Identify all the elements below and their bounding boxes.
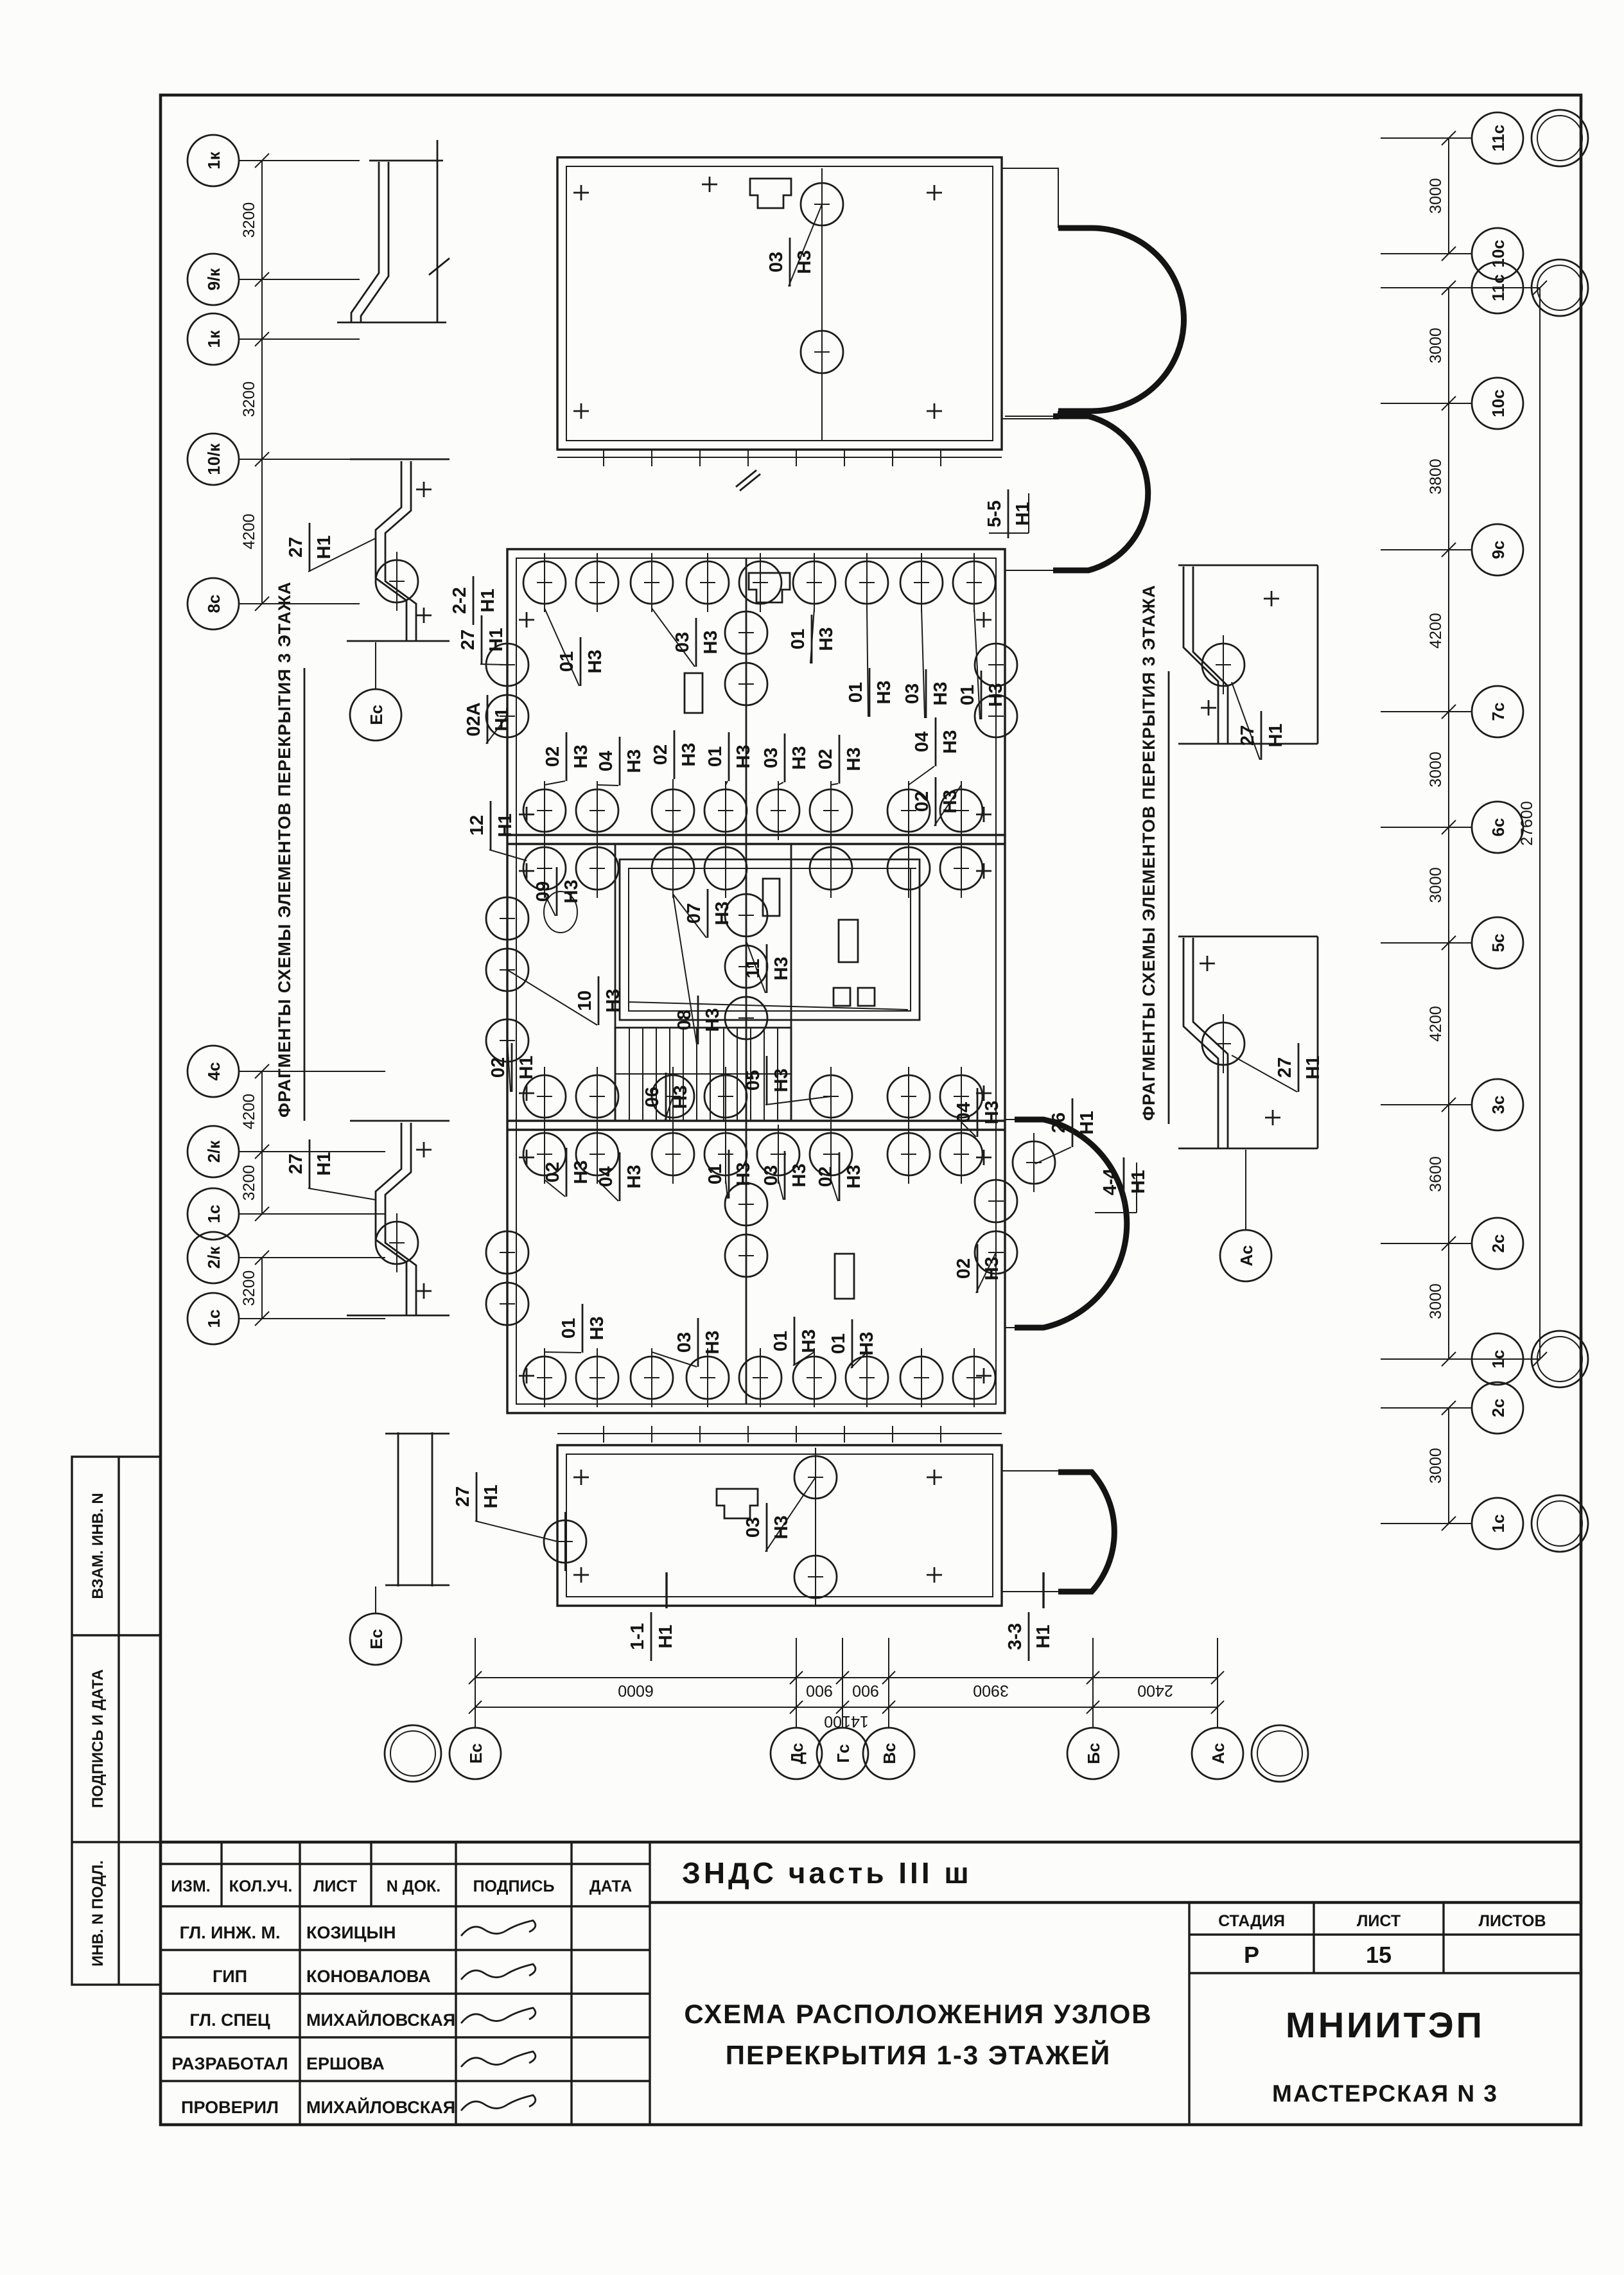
node-circle: [887, 1067, 930, 1126]
col-header-podpis: ПОДПИСЬ: [473, 1877, 555, 1895]
node-circle: [725, 603, 767, 662]
drawing-text: 02: [650, 744, 671, 765]
node-callout: 04Н3: [596, 1152, 645, 1201]
drawing-text: 3200: [240, 382, 258, 417]
node-circle: [523, 553, 566, 612]
axis-marker: 6с: [1472, 802, 1523, 853]
sheet-number: 15: [1366, 1942, 1392, 1968]
drawing-text: Н3: [571, 744, 591, 768]
axis-marker: Ес: [350, 1586, 401, 1665]
col-header-koluch: КОЛ.УЧ.: [229, 1877, 293, 1895]
drawing-text: Ес: [466, 1743, 485, 1764]
node-circle: [846, 553, 888, 612]
side-stamp-label: ВЗАМ. ИНВ. N: [89, 1493, 107, 1599]
drawing-text: 27: [286, 537, 306, 558]
drawing-text: Н3: [940, 730, 961, 753]
drawing-text: Н1: [1266, 723, 1286, 747]
drawing-text: 3000: [1427, 751, 1445, 787]
node-circle: [576, 553, 618, 612]
drawing-text: 7с: [1489, 703, 1508, 721]
drawing-text: Н3: [712, 901, 733, 925]
drawing-text: Н3: [771, 1515, 792, 1539]
vent-block: [750, 179, 791, 208]
node-callout: 01Н3: [545, 1304, 607, 1353]
node-callout: 01Н3: [957, 608, 1006, 719]
bay-window: [1015, 1120, 1127, 1328]
drawing-text: 01: [828, 1333, 849, 1354]
drawing-text: 6000: [618, 1682, 654, 1700]
drawing-text: 03: [761, 1165, 781, 1186]
fragment-note-left: ФРАГМЕНТЫ СХЕМЫ ЭЛЕМЕНТОВ ПЕРЕКРЫТИЯ 3 Э…: [275, 581, 294, 1118]
drawing-text: 01: [705, 1164, 726, 1184]
drawing-text: 3200: [240, 1270, 258, 1306]
bay-window: [1058, 228, 1184, 411]
wall-fragment: [1178, 565, 1318, 1148]
node-callout: 01Н3: [771, 1317, 819, 1366]
node-circles: [376, 175, 1244, 1606]
drawing-text: 12: [467, 815, 487, 836]
drawing-text: 1-1: [627, 1623, 648, 1650]
drawing-text: 900: [806, 1682, 833, 1700]
drawing-text: 3200: [240, 202, 258, 238]
drawing-text: 27600: [1518, 801, 1536, 846]
drawing-text: Н3: [733, 744, 754, 768]
drawing-text: 3000: [1427, 867, 1445, 903]
drawing-text: 2400: [1137, 1682, 1173, 1700]
drawing-text: Н3: [930, 681, 951, 705]
drawing-text: 1с: [204, 1310, 223, 1328]
drawing-text: 02А: [464, 702, 484, 736]
axis-marker: 9с: [1472, 524, 1523, 575]
drawing-text: Бс: [1084, 1743, 1103, 1764]
drawing-text: 07: [684, 903, 704, 924]
drawing-text: 01: [557, 651, 577, 672]
drawing-text: 27: [286, 1154, 306, 1174]
drawing-text: Н1: [478, 588, 498, 612]
axis-marker: 10с: [1472, 228, 1523, 279]
node-callout: 27Н1: [458, 615, 507, 665]
drawing-text: ГЛ. ИНЖ. М.: [180, 1923, 281, 1942]
sheet-title-line2: ПЕРЕКРЫТИЯ 1-3 ЭТАЖЕЙ: [726, 2039, 1111, 2070]
node-circle: [544, 1512, 586, 1571]
drawing-text: 3-3: [1005, 1623, 1026, 1650]
drawing-text: КОЗИЦЫН: [306, 1923, 396, 1942]
drawing-text: ГИП: [213, 1967, 247, 1986]
signature-scribble: [461, 2008, 536, 2023]
drawing-text: 02: [816, 749, 836, 769]
drawing-text: 4-4: [1100, 1168, 1121, 1195]
drawing-text: Н3: [982, 1100, 1002, 1124]
drawing-text: 4200: [1427, 613, 1445, 649]
side-stamp-label: ПОДПИСЬ И ДАТА: [89, 1669, 107, 1808]
drawing-text: 11: [743, 959, 764, 979]
drawing-text: МИХАЙЛОВСКАЯ: [306, 2010, 455, 2030]
drawing-text: 2/к: [204, 1140, 223, 1163]
axis-marker: Ес: [450, 1728, 501, 1779]
drawing-text: 1к: [204, 151, 223, 169]
drawing-text: Н3: [986, 683, 1006, 707]
drawing-text: Ес: [367, 1629, 386, 1649]
drawing-text: 9/к: [204, 268, 223, 291]
node-callout: 09Н3: [533, 867, 582, 916]
drawing-text: 03: [674, 1332, 695, 1353]
drawing-text: 27: [453, 1486, 473, 1507]
drawing-text: ЕРШОВА: [306, 2054, 385, 2073]
node-callout: 02Н3: [816, 1152, 864, 1201]
drawing-text: 4200: [1427, 1006, 1445, 1042]
drawing-text: Н3: [587, 1316, 607, 1340]
drawing-text: Н3: [703, 1008, 723, 1032]
axis-chain-right: 11с10с30009с38007с42006с30005с30003с4200…: [1381, 259, 1588, 1387]
organization-name: МНИИТЭП: [1286, 2005, 1485, 2045]
node-circle: [704, 781, 747, 840]
axis-marker: Гс: [817, 1728, 868, 1779]
drawing-text: Н3: [733, 1162, 754, 1186]
node-circle: [900, 553, 943, 612]
drawing-text: 27: [458, 629, 478, 650]
node-circle: [523, 1348, 566, 1407]
node-circle: [652, 781, 694, 840]
drawing-text: 2с: [1489, 1399, 1508, 1418]
drawing-text: 4200: [240, 514, 258, 550]
drawing-text: 03: [902, 683, 923, 704]
drawing-text: 3000: [1427, 1448, 1445, 1484]
node-callout: 03Н3: [902, 608, 951, 718]
drawing-text: 1с: [204, 1205, 223, 1224]
drawing-text: 04: [596, 751, 616, 771]
drawing-text: 4с: [204, 1062, 223, 1081]
drawing-text: 9с: [1489, 541, 1508, 559]
drawing-text: 03: [761, 748, 781, 768]
node-circle: [975, 1172, 1017, 1231]
axis-marker: 1к: [188, 135, 239, 186]
signature-scribble: [461, 2051, 536, 2067]
drawing-text: 2/к: [204, 1246, 223, 1269]
node-circle: [686, 1348, 729, 1407]
drawing-text: 04: [596, 1166, 616, 1187]
axis-marker: Вс: [863, 1728, 914, 1779]
bay-window: [1058, 1472, 1114, 1592]
sheet-title-line1: СХЕМА РАСПОЛОЖЕНИЯ УЗЛОВ: [684, 1999, 1152, 2029]
axis-marker: 2с: [1472, 1218, 1523, 1269]
drawing-text: Н3: [799, 1329, 819, 1353]
drawing-text: Н1: [656, 1624, 676, 1648]
drawing-text: 01: [846, 682, 866, 703]
wall-fragment: [337, 140, 450, 1586]
blueprint-page: ВЗАМ. ИНВ. N ПОДПИСЬ И ДАТА ИНВ. N ПОДЛ.…: [0, 0, 1624, 2275]
node-callout: 26Н1: [1035, 1098, 1097, 1164]
node-circle: [1013, 1133, 1055, 1192]
axis-marker: Ас: [1192, 1728, 1243, 1779]
node-callout: 02Н3: [954, 1244, 1002, 1293]
drawing-text: Н3: [585, 649, 606, 673]
drawing-text: Н3: [857, 1331, 877, 1355]
drawing-text: Вс: [880, 1743, 899, 1764]
node-circle: [686, 553, 729, 612]
drawing-text: 01: [771, 1331, 791, 1351]
drawing-text: 2с: [1489, 1234, 1508, 1253]
drawing-text: 3с: [1489, 1096, 1508, 1114]
node-callout: 03Н3: [766, 204, 822, 286]
axis-marker: 2с: [1472, 1382, 1523, 1434]
drawing-text: Н3: [679, 742, 699, 766]
side-stamp: ВЗАМ. ИНВ. N ПОДПИСЬ И ДАТА ИНВ. N ПОДЛ.: [72, 1457, 161, 1985]
node-callout: 27Н1: [1232, 682, 1286, 760]
node-circle: [576, 1348, 618, 1407]
node-callout: 02Н3: [912, 777, 961, 826]
axis-marker: 8с: [188, 578, 239, 629]
drawing-text: 10/к: [204, 443, 223, 475]
drawing-text: Н1: [1033, 1624, 1054, 1648]
drawing-text: 3200: [240, 1165, 258, 1201]
node-circle: [631, 553, 673, 612]
drawing-text: 3000: [1427, 178, 1445, 214]
node-callout: 02Н1: [488, 1041, 537, 1092]
node-circle: [576, 839, 618, 898]
node-callout: 01Н3: [545, 608, 606, 686]
drawing-text: 10с: [1489, 389, 1508, 417]
drawing-text: 8с: [204, 595, 223, 613]
col-header-ndok: N ДОК.: [387, 1877, 441, 1895]
drawing-text: 03: [766, 252, 787, 272]
node-circle: [725, 1226, 767, 1285]
drawing-text: Н1: [481, 1484, 502, 1508]
drawing-text: 3000: [1427, 328, 1445, 364]
drawing-text: Н1: [492, 707, 512, 731]
drawing-text: Н3: [940, 789, 961, 813]
drawing-text: Ес: [367, 705, 386, 725]
node-circle: [887, 1125, 930, 1184]
axis-chain-right: 11с10с3000: [1381, 110, 1588, 279]
side-stamp-label: ИНВ. N ПОДЛ.: [89, 1860, 107, 1966]
axis-marker: 10с: [1472, 378, 1523, 429]
drawing-text: 02: [912, 791, 932, 812]
vent-block: [717, 1489, 758, 1518]
axis-marker: 11с: [1472, 112, 1523, 164]
axis-marker: 2/к: [188, 1126, 239, 1177]
drawing-text: 03: [672, 632, 693, 653]
axis-marker: Ес: [350, 642, 401, 741]
drawing-text: Н3: [844, 747, 864, 771]
floor-plan: [337, 140, 1318, 1608]
node-circle: [486, 1223, 528, 1282]
drawing-text: 04: [912, 732, 932, 752]
drawing-text: Н1: [1013, 502, 1033, 525]
drawing-text: Н3: [571, 1160, 591, 1184]
sheet-label: ЛИСТ: [1357, 1912, 1401, 1930]
drawing-text: Н1: [314, 1152, 335, 1175]
node-circle: [801, 322, 843, 382]
drawing-text: Н3: [624, 1164, 645, 1188]
drawing-text: 5с: [1489, 934, 1508, 953]
axis-marker: 4с: [188, 1046, 239, 1097]
drawing-text: Н3: [874, 680, 895, 704]
node-callout: 02Н3: [650, 730, 699, 785]
blueprint-canvas: ВЗАМ. ИНВ. N ПОДПИСЬ И ДАТА ИНВ. N ПОДЛ.…: [0, 0, 1624, 2275]
node-callout: 07Н3: [673, 889, 733, 938]
node-circle: [940, 1125, 982, 1184]
drawing-text: Н1: [1077, 1111, 1097, 1134]
axis-marker: 5с: [1472, 917, 1523, 969]
node-callout: 03Н3: [761, 1151, 810, 1200]
node-circle: [793, 1348, 835, 1407]
drawing-text: 05: [743, 1070, 764, 1091]
bay-window: [1053, 416, 1148, 570]
axis-marker: 1с: [188, 1293, 239, 1344]
node-circle: [793, 553, 835, 612]
drawing-text: Н3: [670, 1085, 691, 1109]
node-callout: 02Н3: [816, 735, 864, 785]
axis-marker: 10/к: [188, 434, 239, 485]
node-circle: [1202, 635, 1244, 694]
drawing-text: Н3: [624, 749, 645, 773]
node-circle: [757, 781, 799, 840]
node-callout: 02Н3: [543, 732, 591, 785]
drawing-text: 2-2: [450, 587, 470, 614]
node-circle: [376, 552, 418, 611]
axis-marker: 1с: [1472, 1498, 1523, 1549]
drawing-text: Н1: [495, 813, 516, 837]
drawing-text: Н3: [789, 746, 810, 769]
drawing-text: Н1: [486, 628, 507, 651]
drawing-text: Н3: [701, 630, 721, 654]
sheets-label: ЛИСТОВ: [1478, 1912, 1546, 1930]
signature-scribble: [461, 1964, 536, 1980]
drawing-text: Н1: [1303, 1055, 1323, 1079]
node-circle: [953, 553, 995, 612]
node-callout: 1-1Н1: [627, 1612, 676, 1661]
node-callout: 2-2Н1: [450, 576, 498, 625]
node-circle: [940, 839, 982, 898]
node-callout: 27Н1: [1232, 1043, 1323, 1092]
node-callout: 10Н3: [507, 970, 624, 1025]
drawing-text: 26: [1049, 1112, 1069, 1133]
node-callout: 04Н3: [596, 737, 645, 786]
drawing-text: ПРОВЕРИЛ: [181, 2098, 279, 2117]
axis-marker: 1к: [188, 313, 239, 365]
axis-marker: Бс: [1067, 1728, 1119, 1779]
drawing-text: 11с: [1489, 125, 1508, 152]
drawing-text: 02: [954, 1258, 974, 1279]
axis-marker: 7с: [1472, 686, 1523, 737]
drawing-text: МИХАЙЛОВСКАЯ: [306, 2097, 455, 2117]
node-callout: 02Н3: [543, 1148, 591, 1197]
node-circle: [725, 654, 767, 714]
stage-label: СТАДИЯ: [1218, 1912, 1285, 1930]
node-callout: 27Н1: [286, 1139, 376, 1200]
drawing-text: Н1: [516, 1055, 537, 1079]
node-circle: [376, 1213, 418, 1272]
drawing-text: 08: [674, 1010, 695, 1030]
drawing-text: 02: [543, 1162, 563, 1182]
node-circle: [725, 988, 767, 1048]
drawing-text: 6с: [1489, 818, 1508, 837]
node-callout: 5-5Н1: [984, 489, 1033, 538]
drawing-text: Н3: [771, 1068, 792, 1092]
drawing-text: Н3: [982, 1256, 1002, 1280]
drawing-text: 01: [957, 685, 978, 705]
signature-scribble: [461, 1920, 536, 1936]
drawing-text: 14100: [824, 1712, 869, 1730]
drawing-text: 02: [543, 746, 563, 767]
drawing-text: 3800: [1427, 459, 1445, 495]
node-circle: [900, 1348, 943, 1407]
drawing-text: 3900: [973, 1682, 1009, 1700]
drawing-text: 3000: [1427, 1283, 1445, 1319]
node-circle: [523, 781, 566, 840]
drawing-text: КОНОВАЛОВА: [306, 1967, 431, 1986]
drawing-text: 27: [1237, 725, 1258, 746]
node-callout: 01Н3: [828, 1319, 877, 1368]
vent-block: [749, 573, 790, 602]
fragment-notes: ФРАГМЕНТЫ СХЕМЫ ЭЛЕМЕНТОВ ПЕРЕКРЫТИЯ 3 Э…: [275, 581, 1169, 1124]
drawing-text: 27: [1275, 1057, 1295, 1078]
node-callout: 04Н3: [909, 717, 961, 785]
axis-marker: 3с: [1472, 1079, 1523, 1130]
node-circle: [576, 1067, 618, 1126]
node-callout: 11Н3: [743, 941, 792, 993]
drawing-text: 09: [533, 881, 554, 902]
drawing-text: Н3: [603, 988, 624, 1012]
drawing-text: Н3: [561, 879, 582, 903]
col-header-data: ДАТА: [589, 1877, 632, 1895]
node-callout: 03Н3: [761, 733, 810, 785]
col-header-list: ЛИСТ: [313, 1877, 357, 1895]
drawing-text: Н3: [816, 627, 837, 651]
node-circle: [486, 1274, 528, 1333]
drawing-text: 4200: [240, 1094, 258, 1130]
node-callout: 01Н3: [846, 608, 895, 717]
drawing-text: Ас: [1237, 1245, 1256, 1267]
drawing-text: 02: [816, 1166, 836, 1187]
drawing-text: 06: [642, 1087, 663, 1107]
drawing-text: РАЗРАБОТАЛ: [171, 2054, 288, 2073]
node-callout: 01Н3: [788, 608, 837, 663]
drawing-text: 1с: [1489, 1515, 1508, 1533]
axis-marker: Дс: [771, 1728, 822, 1779]
stage-value: Р: [1244, 1942, 1259, 1968]
drawing-text: Гс: [834, 1744, 853, 1762]
drawing-text: 10: [575, 990, 595, 1011]
drawing-text: Дс: [787, 1743, 807, 1764]
drawing-text: 03: [743, 1517, 764, 1538]
drawing-text: Н3: [771, 956, 792, 980]
drawing-text: 01: [559, 1318, 579, 1339]
workshop-name: МАСТЕРСКАЯ N 3: [1272, 2080, 1498, 2107]
title-block: ИЗМ. КОЛ.УЧ. ЛИСТ N ДОК. ПОДПИСЬ ДАТА ГЛ…: [161, 1842, 1581, 2125]
node-circle: [953, 1348, 995, 1407]
axis-chain-bottom: ЕсДс6000Гс900Вс900Бс3900Ас240014100: [385, 1638, 1308, 1782]
node-circle: [810, 781, 852, 840]
node-circle: [652, 1125, 694, 1184]
node-callout: 12Н1: [467, 801, 527, 861]
col-header-izm: ИЗМ.: [171, 1877, 210, 1895]
fragment-note-right: ФРАГМЕНТЫ СХЕМЫ ЭЛЕМЕНТОВ ПЕРЕКРЫТИЯ 3 Э…: [1139, 584, 1158, 1121]
drawing-text: Н3: [844, 1164, 864, 1188]
axis-chain-left: 2/к1с3200: [188, 1232, 385, 1344]
signature-scribble: [461, 2095, 536, 2111]
drawing-text: 3600: [1427, 1156, 1445, 1192]
drawing-text: 1к: [204, 329, 223, 347]
node-callout: 27Н1: [286, 523, 376, 572]
drawing-text: Н1: [314, 535, 335, 559]
drawing-text: 900: [852, 1682, 879, 1700]
axis-marker: 9/к: [188, 254, 239, 305]
document-code: ЗНДС часть III ш: [682, 1856, 972, 1890]
drawing-text: Н3: [789, 1163, 810, 1187]
node-circle: [486, 889, 528, 948]
drawing-text: 02: [488, 1057, 509, 1078]
